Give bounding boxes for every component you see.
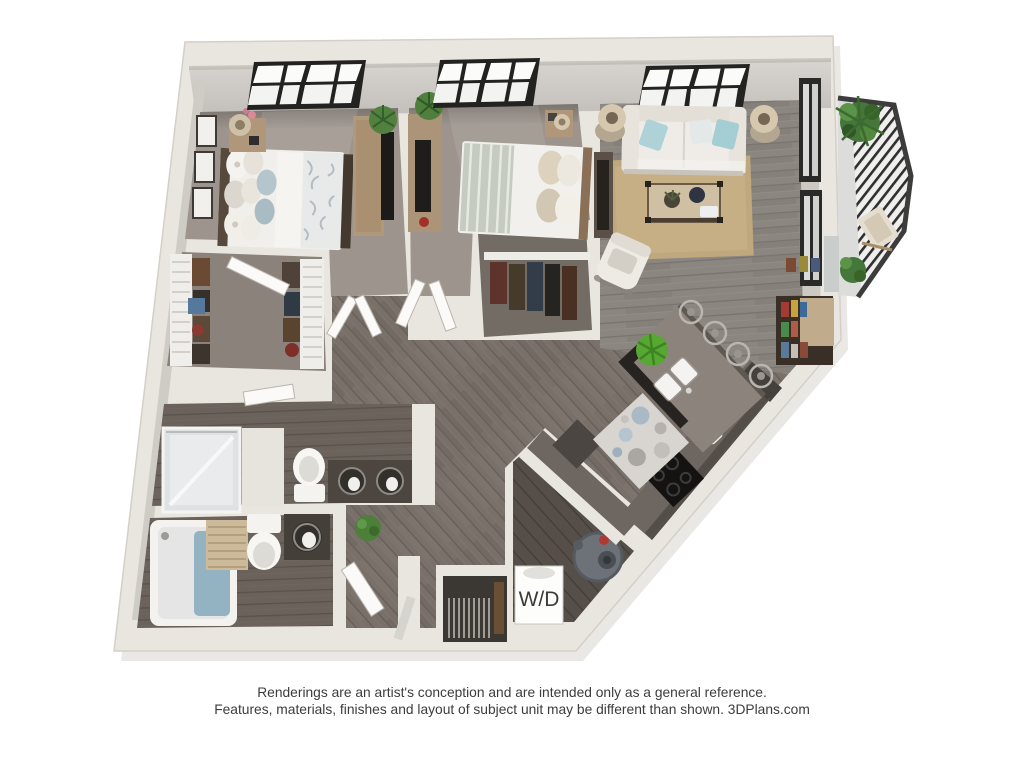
svg-text:W/D: W/D (519, 588, 560, 611)
